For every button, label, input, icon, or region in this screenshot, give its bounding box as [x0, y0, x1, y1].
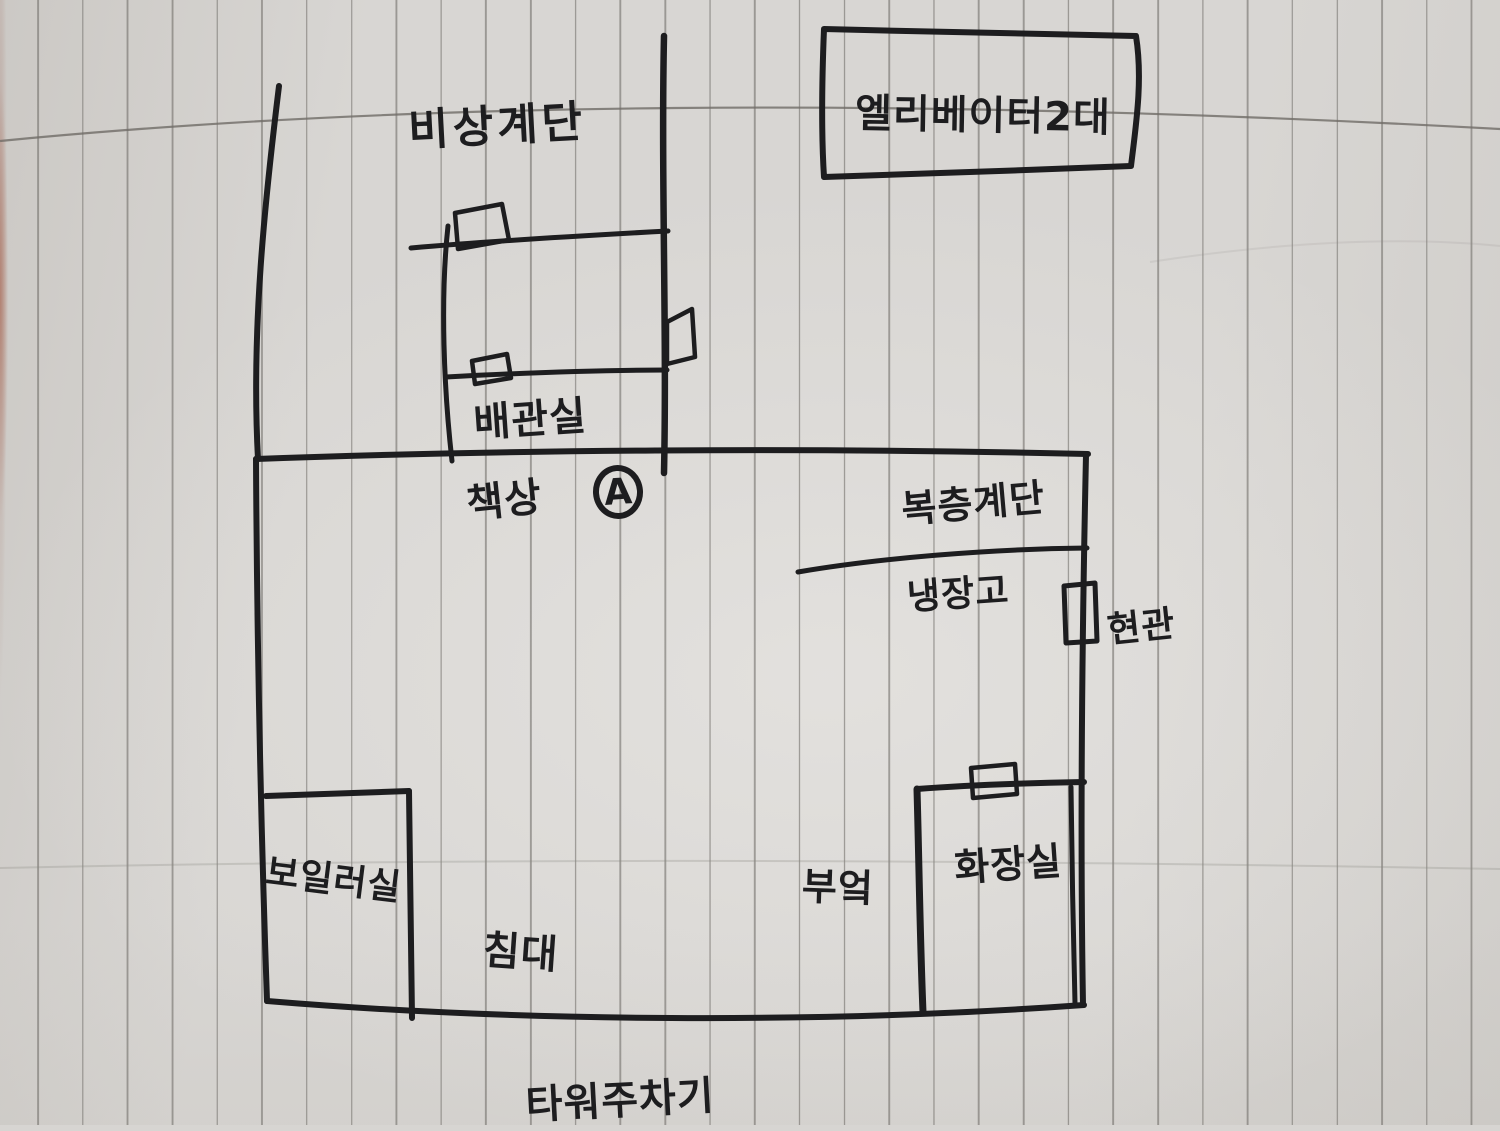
label-elevators: 엘리베이터2대	[855, 81, 1112, 143]
wall-piperoom-bottom	[446, 370, 667, 377]
floorplan-drawing	[0, 0, 1500, 1125]
wall-piperoom-left	[444, 226, 452, 461]
wall-main-right	[1082, 455, 1086, 1005]
door-piperoom	[472, 354, 511, 384]
wall-upper-left-curved	[256, 86, 279, 459]
paper-top-rule-line	[0, 108, 1500, 141]
wall-bathroom-left	[917, 789, 923, 1012]
notebook-paper: 비상계단 엘리베이터2대 배관실 책상 복층계단 냉장고 현관 보일러실 부엌 …	[0, 0, 1500, 1125]
paper-crease-line-2	[1150, 241, 1500, 262]
wall-main-top	[256, 450, 1088, 459]
wall-upper-right	[663, 36, 665, 473]
wall-boiler-right	[409, 791, 412, 1018]
label-pipe-room: 배관실	[471, 383, 588, 449]
label-tower-parking: 타워주차기	[524, 1063, 716, 1131]
door-upper-right	[667, 309, 695, 364]
wall-main-left	[256, 459, 267, 1001]
label-entrance: 현관	[1104, 595, 1177, 654]
wall-bathroom-inner-right	[1071, 787, 1075, 1003]
label-kitchen: 부엌	[801, 855, 875, 912]
wall-boiler-top	[266, 791, 409, 796]
wall-bathroom-top	[917, 782, 1084, 789]
wall-main-bottom	[267, 1001, 1084, 1018]
label-desk: 책상	[463, 464, 544, 530]
label-bathroom: 화장실	[952, 830, 1063, 892]
label-emergency-stairs: 비상계단	[406, 85, 587, 158]
circled-a-letter: A	[603, 471, 634, 514]
label-refrigerator: 냉장고	[905, 561, 1011, 620]
label-bed: 침대	[481, 917, 560, 980]
paper-crease-line	[0, 861, 1500, 869]
